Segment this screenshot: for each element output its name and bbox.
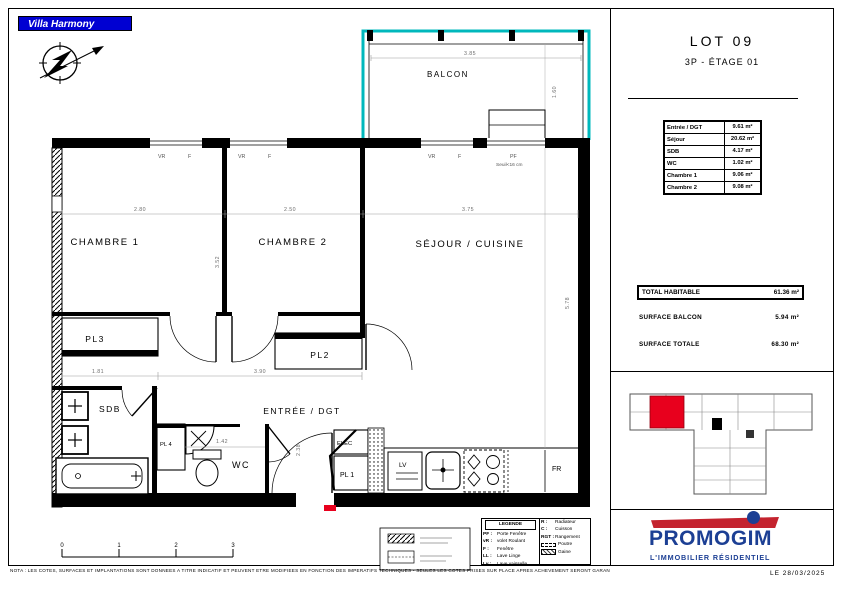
room-label-chambre1: CHAMBRE 1: [71, 237, 140, 248]
surface-totale-label: SURFACE TOTALE: [639, 341, 700, 348]
dim-chambre1-width: 2.80: [134, 207, 146, 213]
appliance-label-lv: LV: [399, 462, 407, 469]
room-label-elec: ELEC: [337, 441, 352, 447]
scale-tick-0: 0: [60, 543, 64, 549]
legend-symbol-gaine: Gaine: [541, 549, 589, 556]
area-label: SDB: [665, 149, 724, 155]
area-label: Entrée / DGT: [665, 125, 724, 131]
scale-tick-2: 2: [174, 543, 178, 549]
table-row: Chambre 1 9.06 m²: [665, 170, 760, 182]
footer-disclaimer: NOTA : LES COTES, SURFACES ET IMPLANTATI…: [10, 568, 610, 573]
area-label: Chambre 2: [665, 185, 724, 191]
surface-balcon-label: SURFACE BALCON: [639, 314, 702, 321]
table-row: WC 1.02 m²: [665, 158, 760, 170]
exterior-walls: [52, 138, 590, 511]
legend-left-column: LEGENDE PF :Porte Fenêtre vR :volet Roul…: [482, 519, 540, 564]
legend-entry: LL :Lave Linge: [483, 553, 538, 560]
appliance-label-fr: FR: [552, 466, 561, 473]
dim-chambre-depth: 3.52: [215, 256, 221, 268]
table-row: Séjour 20.62 m²: [665, 134, 760, 146]
dim-sejour-width: 3.75: [462, 207, 474, 213]
promogim-logo: PROMOGIM L'IMMOBILIER RÉSIDENTIEL: [648, 510, 828, 564]
room-label-balcon: BALCON: [427, 70, 469, 79]
legend-entry: Lv :Lave vaisselle: [483, 561, 538, 568]
room-label-wc: WC: [232, 460, 250, 470]
lot-title: LOT 09: [610, 33, 834, 49]
room-label-pl4: PL 4: [160, 442, 172, 448]
legend-box: LEGENDE PF :Porte Fenêtre vR :volet Roul…: [481, 518, 591, 565]
label-f-2: F: [268, 154, 272, 160]
label-vr-1: VR: [158, 154, 166, 160]
area-label: Séjour: [665, 137, 724, 143]
label-f-3: F: [458, 154, 462, 160]
balcony: 3.85 BALCON 1.60: [363, 30, 589, 140]
hatch-symbol: [541, 549, 556, 555]
kitchen-counter: [384, 148, 578, 493]
legend-entry: F :Fenêtre: [483, 546, 538, 553]
floor-plan: 3.85 BALCON 1.60 VR: [0, 0, 610, 595]
toilet-icon: [193, 450, 221, 486]
room-label-chambre2: CHAMBRE 2: [259, 237, 328, 248]
room-label-pl3: PL3: [85, 334, 105, 344]
legend-entry: C :Cuisson: [541, 526, 589, 533]
surface-balcon-row: SURFACE BALCON 5.94 m²: [639, 314, 799, 321]
table-row: Chambre 2 9.08 m²: [665, 182, 760, 193]
legend-entry: PF :Porte Fenêtre: [483, 531, 538, 538]
label-f-1: F: [188, 154, 192, 160]
label-pf: PF: [510, 154, 518, 160]
north-arrow-icon: [39, 42, 104, 84]
total-habitable-value: 61.36 m²: [774, 289, 799, 296]
scale-tick-3: 3: [231, 543, 235, 549]
area-value: 9.08 m²: [724, 182, 760, 193]
room-label-sejour: SÉJOUR / CUISINE: [416, 239, 525, 250]
highlighted-unit: [650, 396, 684, 428]
label-vr-3: VR: [428, 154, 436, 160]
total-habitable-row: TOTAL HABITABLE 61.36 m²: [637, 285, 804, 300]
dashed-symbol: [541, 543, 556, 547]
label-vr-2: VR: [238, 154, 246, 160]
surface-balcon-value: 5.94 m²: [775, 314, 799, 321]
legend-entry: vR :volet Roulant: [483, 538, 538, 545]
logo-tagline: L'IMMOBILIER RÉSIDENTIEL: [650, 553, 770, 562]
plot-date: LE 28/03/2025: [770, 570, 825, 577]
legend-entry: R :Radiateur: [541, 519, 589, 526]
site-key-plan: [616, 378, 830, 506]
dim-chambre2-width: 2.50: [284, 207, 296, 213]
legend-symbol-poutre: Poutre: [541, 541, 589, 548]
area-value: 9.06 m²: [724, 170, 760, 181]
table-row: Entrée / DGT 9.61 m²: [665, 122, 760, 134]
area-label: Chambre 1: [665, 173, 724, 179]
panel-divider: [610, 8, 611, 565]
room-label-pl1: PL 1: [340, 472, 354, 479]
bathtub-icon: [56, 458, 148, 494]
room-label-entree: ENTRÉE / DGT: [263, 406, 341, 416]
area-value: 4.17 m²: [724, 146, 760, 157]
dim-entree-depth: 2.38: [296, 444, 302, 456]
label-pf-seuil: Seuil<16 cm: [496, 162, 523, 168]
dim-balcony-depth: 1.60: [552, 86, 558, 98]
legend-entry: RGT :Rangement: [541, 534, 589, 541]
table-row: SDB 4.17 m²: [665, 146, 760, 158]
area-value: 1.02 m²: [724, 158, 760, 169]
panel-section-line-1: [610, 371, 833, 372]
total-habitable-label: TOTAL HABITABLE: [642, 289, 700, 296]
legend-title: LEGENDE: [485, 520, 536, 530]
threshold-detail: [380, 528, 470, 570]
gaine-shaft: [368, 428, 384, 493]
panel-rule: [628, 98, 798, 99]
hob-icon: [464, 450, 504, 492]
area-value: 20.62 m²: [724, 134, 760, 145]
lot-subtitle: 3P - ÉTAGE 01: [610, 57, 834, 67]
areas-table: Entrée / DGT 9.61 m² Séjour 20.62 m² SDB…: [663, 120, 762, 195]
dim-hall-width: 3.90: [254, 369, 266, 375]
surface-totale-row: SURFACE TOTALE 68.30 m²: [639, 341, 799, 348]
logo-blue-dot: [747, 511, 760, 524]
window-labels: VR F VR F VR F PF Seuil<16 cm: [158, 154, 523, 168]
entrance-marker: [324, 505, 336, 511]
dim-sejour-depth: 5.78: [565, 297, 571, 309]
logo-name: PROMOGIM: [649, 527, 772, 551]
radiator-icon: [62, 392, 88, 454]
dim-sdb-width: 1.81: [92, 369, 104, 375]
scale-tick-1: 1: [117, 543, 121, 549]
room-label-pl2: PL2: [310, 350, 330, 360]
area-label: WC: [665, 161, 724, 167]
dim-balcony-width: 3.85: [464, 51, 476, 57]
room-label-sdb: SDB: [99, 404, 121, 414]
legend-right-column: R :Radiateur C :Cuisson RGT :Rangement P…: [540, 519, 590, 564]
area-value: 9.61 m²: [724, 122, 760, 133]
surface-totale-value: 68.30 m²: [771, 341, 799, 348]
dim-wc-width: 1.42: [216, 439, 228, 445]
scale-bar: [62, 549, 233, 557]
